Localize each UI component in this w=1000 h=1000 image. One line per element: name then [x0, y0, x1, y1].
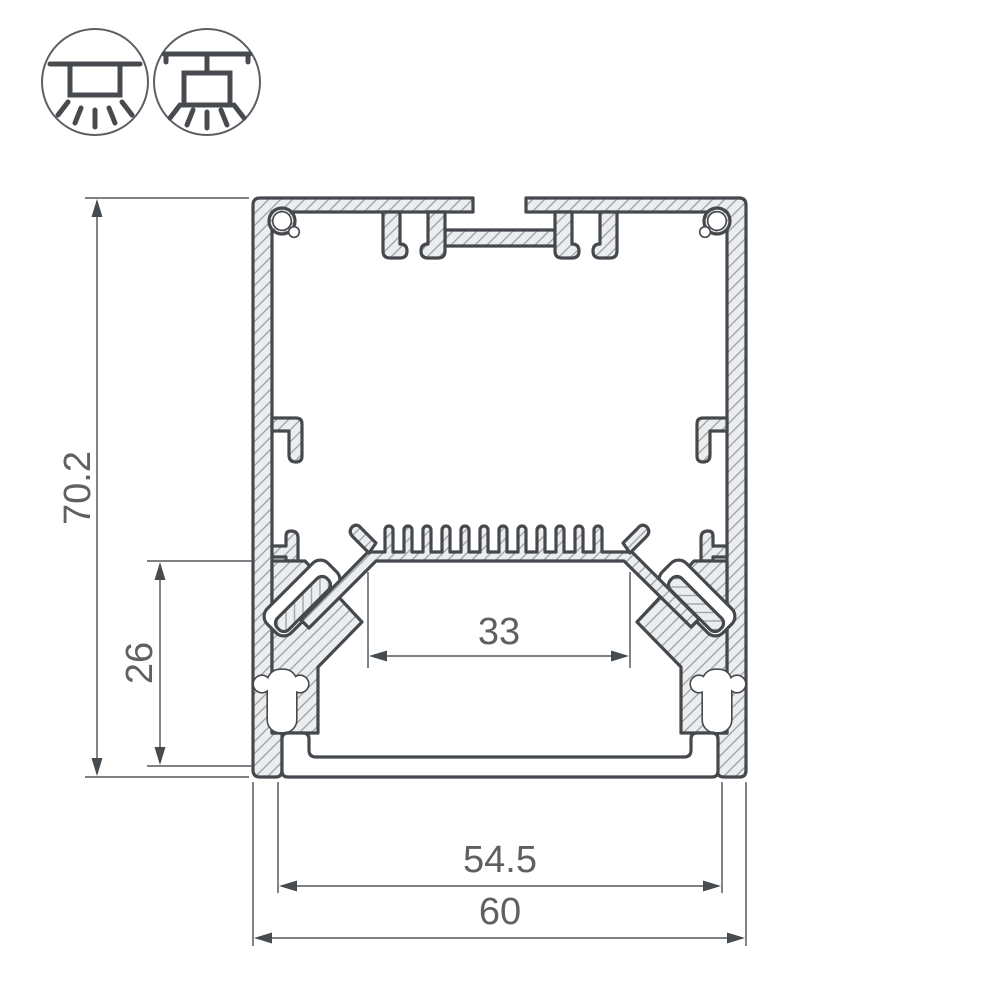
pendant-mount-luminaire-icon	[154, 29, 260, 135]
dimension-label-mount-depth: 26	[119, 642, 161, 684]
dimension-mount-depth: 26	[119, 561, 252, 766]
profile-tslot-leg	[383, 212, 407, 258]
dimension-label-diffuser-width: 54.5	[463, 839, 537, 881]
dimension-label-overall-width: 60	[479, 891, 521, 933]
wall-hook-upper-right	[697, 418, 727, 462]
diffuser-cover	[282, 733, 718, 777]
technical-drawing-page: 70.2 26 33 54.5 60	[0, 0, 1000, 1000]
profile-cross-section	[253, 198, 746, 777]
dimension-diffuser-width: 54.5	[278, 782, 722, 893]
wall-hook-lower-right	[701, 531, 727, 561]
dimension-led-shelf-width: 33	[368, 572, 630, 668]
led-profile-cross-section-drawing: 70.2 26 33 54.5 60	[0, 0, 1000, 1000]
wall-hook-upper-left	[272, 418, 302, 462]
dimension-label-overall-height: 70.2	[57, 451, 99, 525]
dimension-label-led-shelf-width: 33	[478, 611, 520, 653]
profile-tslot-leg	[555, 212, 579, 258]
dimension-overall-height: 70.2	[57, 198, 249, 777]
wall-hook-lower-left	[272, 531, 298, 561]
surface-mount-luminaire-icon	[42, 29, 148, 135]
profile-tslot-leg	[421, 212, 445, 258]
profile-tslot-leg	[593, 212, 617, 258]
profile-center-bridge	[445, 230, 555, 246]
heatsink-slanted-fin-left	[350, 525, 376, 553]
heatsink-slanted-fin-right	[623, 525, 649, 553]
